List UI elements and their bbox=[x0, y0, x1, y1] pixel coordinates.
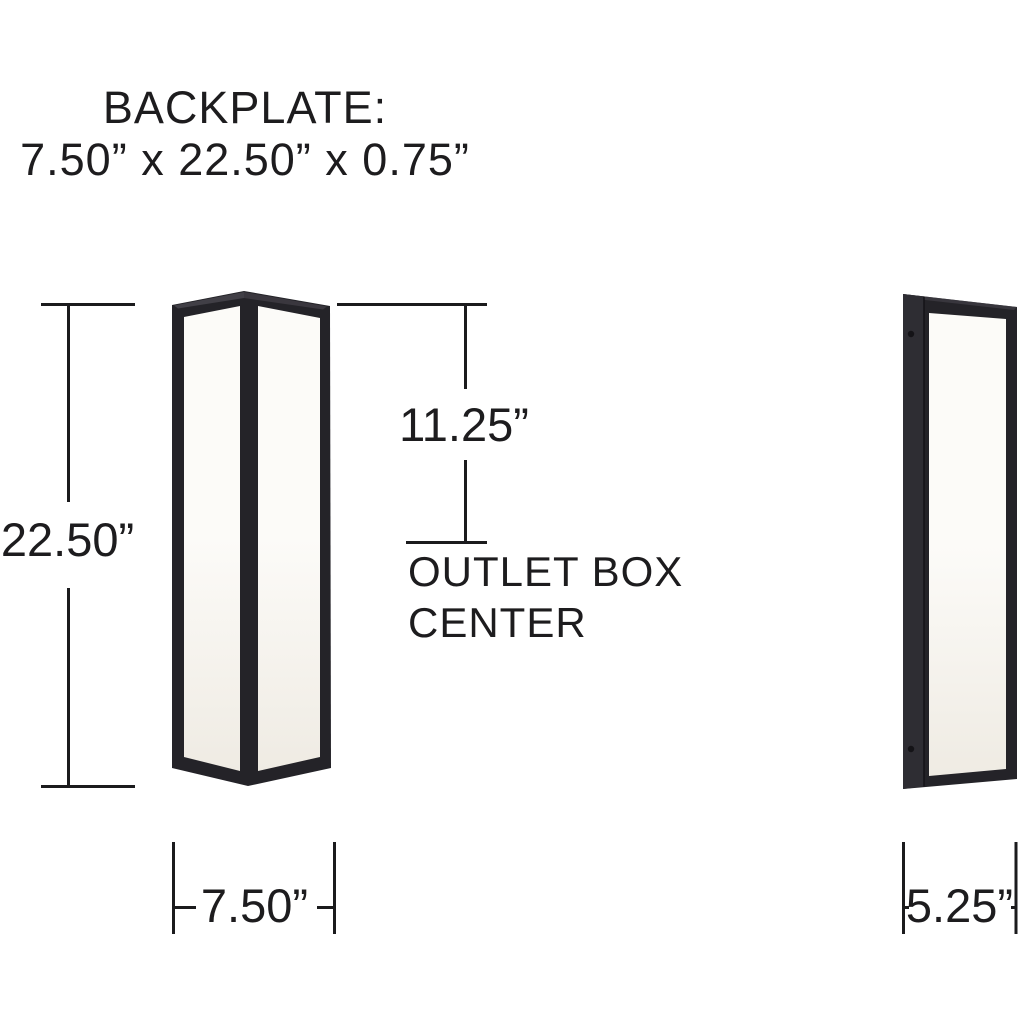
width-dimension-label: 7.50” bbox=[174, 881, 335, 931]
front-diffuser-left bbox=[184, 306, 240, 771]
sconce-side-view bbox=[903, 294, 1017, 789]
outlet-offset-dimension-label: 11.25” bbox=[396, 400, 532, 450]
front-diffuser-right bbox=[258, 306, 320, 771]
sconce-dimension-diagram: BACKPLATE: 7.50” x 22.50” x 0.75” 22.50”… bbox=[0, 0, 1024, 1024]
backplate-spec-title-line1: BACKPLATE: bbox=[15, 82, 475, 134]
outlet-box-caption-line1: OUTLET BOX bbox=[408, 546, 683, 597]
height-dimension-label: 22.50” bbox=[0, 515, 135, 565]
depth-dimension-label: 5.25” bbox=[890, 881, 1024, 931]
outlet-box-caption: OUTLET BOX CENTER bbox=[408, 546, 683, 648]
mounting-screw-top bbox=[908, 331, 914, 337]
backplate-spec-title-line2: 7.50” x 22.50” x 0.75” bbox=[15, 134, 475, 186]
side-backplate bbox=[903, 294, 924, 789]
backplate-spec-title: BACKPLATE: 7.50” x 22.50” x 0.75” bbox=[15, 82, 475, 186]
outlet-box-caption-line2: CENTER bbox=[408, 597, 683, 648]
mounting-screw-bottom bbox=[908, 746, 914, 752]
side-diffuser bbox=[929, 313, 1006, 776]
sconce-front-view bbox=[172, 291, 331, 786]
